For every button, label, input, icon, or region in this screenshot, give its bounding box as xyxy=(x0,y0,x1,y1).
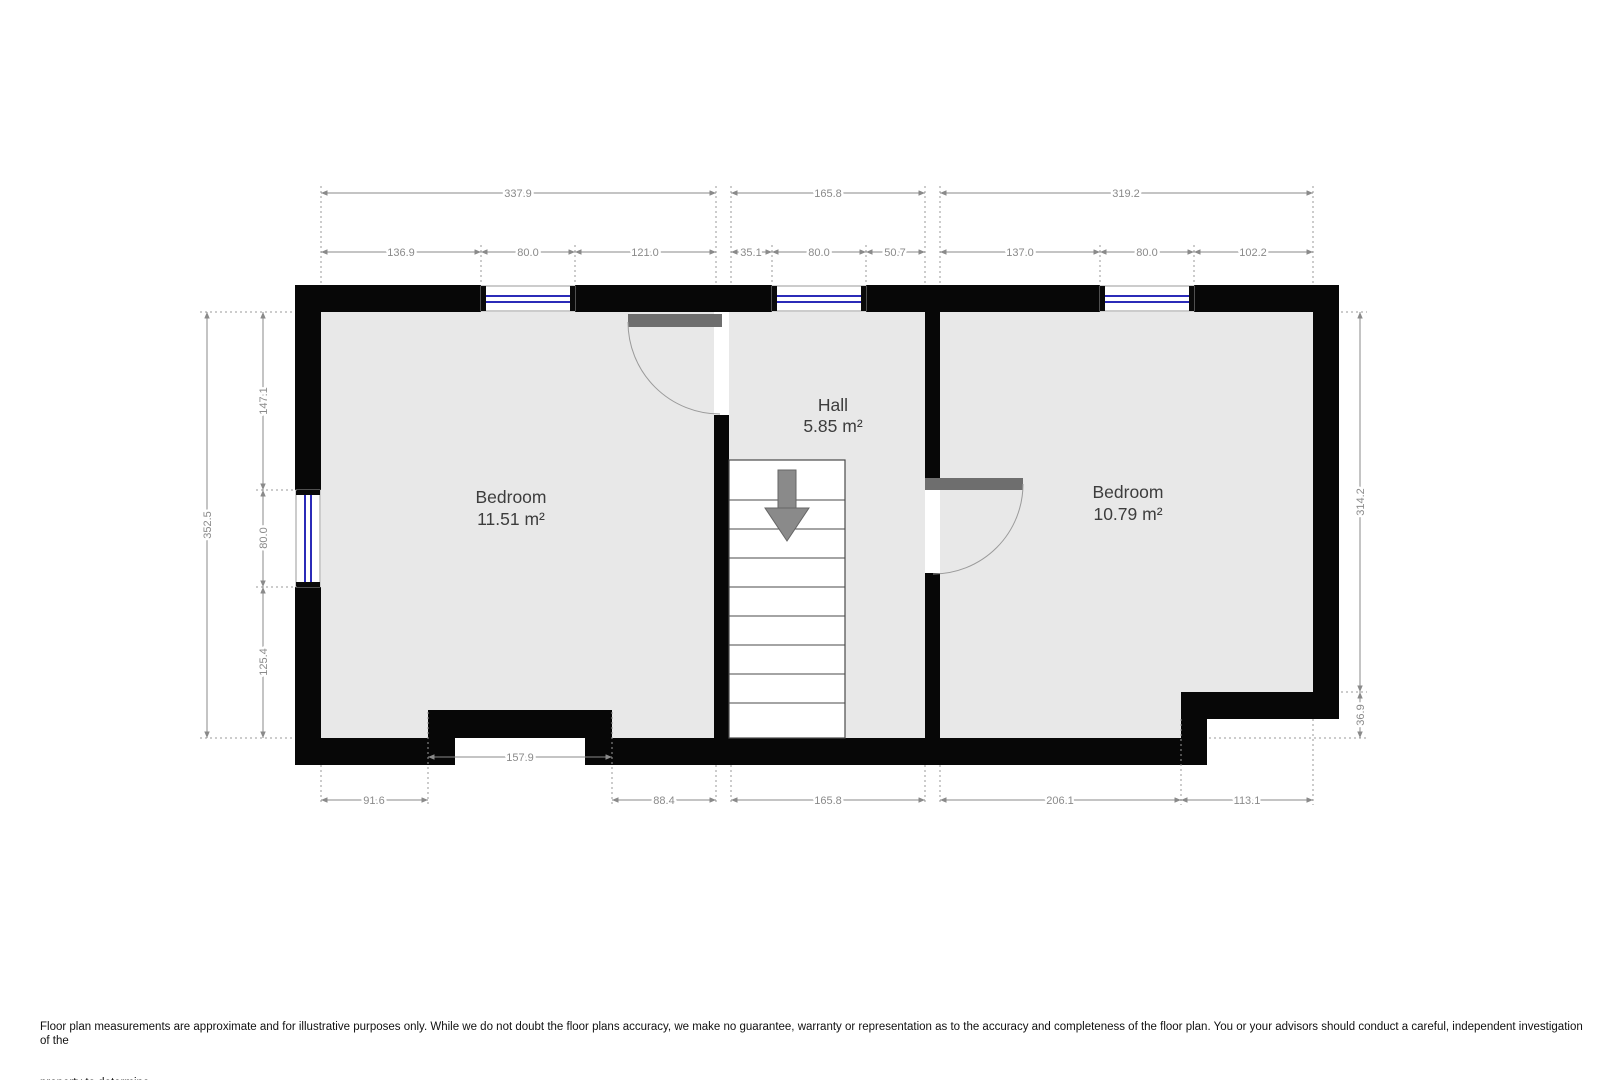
room-name: Bedroom xyxy=(475,487,546,507)
disclaimer-text: Floor plan measurements are approximate … xyxy=(40,992,1585,1080)
disclaimer-line: property to determine xyxy=(40,1076,1585,1080)
dimension-label: 50.7 xyxy=(884,247,905,259)
wall-top xyxy=(295,285,481,312)
dimension-label: 314.2 xyxy=(1355,488,1367,516)
dimension-label: 137.0 xyxy=(1006,247,1034,259)
dimensions-right: 314.2 36.9 xyxy=(1355,312,1367,738)
wall-step-bottom-right xyxy=(1181,692,1339,719)
dimension-label: 80.0 xyxy=(808,247,829,259)
dimension-label: 165.8 xyxy=(814,188,842,200)
floor-plan-drawing: Bedroom 11.51 m² Hall 5.85 m² Bedroom 10… xyxy=(0,0,1620,1080)
dimension-label: 319.2 xyxy=(1112,188,1140,200)
dimension-label: 121.0 xyxy=(631,247,659,259)
chimney-breast xyxy=(428,710,612,738)
wall-right xyxy=(1313,285,1339,719)
dimension-label: 157.9 xyxy=(506,752,534,764)
dimension-label: 35.1 xyxy=(740,247,761,259)
room-area: 10.79 m² xyxy=(1093,504,1162,524)
room-name: Hall xyxy=(818,395,848,415)
dimension-label: 80.0 xyxy=(1136,247,1157,259)
dimension-label: 352.5 xyxy=(202,511,214,539)
wall-interior-left xyxy=(714,415,729,738)
window xyxy=(1100,286,1194,311)
dimension-label: 102.2 xyxy=(1239,247,1267,259)
wall-left xyxy=(295,285,321,490)
disclaimer-line: Floor plan measurements are approximate … xyxy=(40,1020,1585,1048)
dimensions-left: 352.5 147.1 80.0 125.4 xyxy=(202,312,270,738)
dimension-label: 206.1 xyxy=(1046,795,1074,807)
window xyxy=(772,286,866,311)
dimension-label: 136.9 xyxy=(387,247,415,259)
dimension-label: 165.8 xyxy=(814,795,842,807)
room-area: 5.85 m² xyxy=(803,416,862,436)
wall-top xyxy=(575,285,772,312)
window xyxy=(296,490,320,587)
dimension-label: 80.0 xyxy=(258,527,270,548)
window xyxy=(481,286,575,311)
dimension-label: 125.4 xyxy=(258,648,270,676)
dimension-label: 337.9 xyxy=(504,188,532,200)
wall-interior-right xyxy=(925,312,940,478)
wall-step-bottom-right xyxy=(1181,719,1207,765)
door-leaf xyxy=(925,478,1023,490)
dimension-label: 80.0 xyxy=(517,247,538,259)
room-area: 11.51 m² xyxy=(477,509,545,529)
wall-bottom xyxy=(295,738,455,765)
floor-plan-page: Bedroom 11.51 m² Hall 5.85 m² Bedroom 10… xyxy=(0,0,1620,1080)
dimension-label: 91.6 xyxy=(363,795,384,807)
dimensions-top-overall: 337.9 165.8 319.2 xyxy=(321,188,1313,200)
room-name: Bedroom xyxy=(1092,482,1163,502)
wall-top xyxy=(866,285,1100,312)
staircase xyxy=(729,460,845,738)
wall-bottom xyxy=(585,738,1207,765)
door-leaf xyxy=(628,314,722,327)
dimension-label: 113.1 xyxy=(1234,795,1261,807)
dimension-label: 36.9 xyxy=(1355,704,1367,725)
dimension-label: 147.1 xyxy=(258,387,270,415)
dimensions-top-detail: 136.9 80.0 121.0 35.1 80.0 50.7 137.0 80… xyxy=(321,247,1313,259)
bedroom-right-floor xyxy=(940,312,1313,738)
wall-interior-right xyxy=(925,573,940,738)
dimension-label: 88.4 xyxy=(653,795,674,807)
